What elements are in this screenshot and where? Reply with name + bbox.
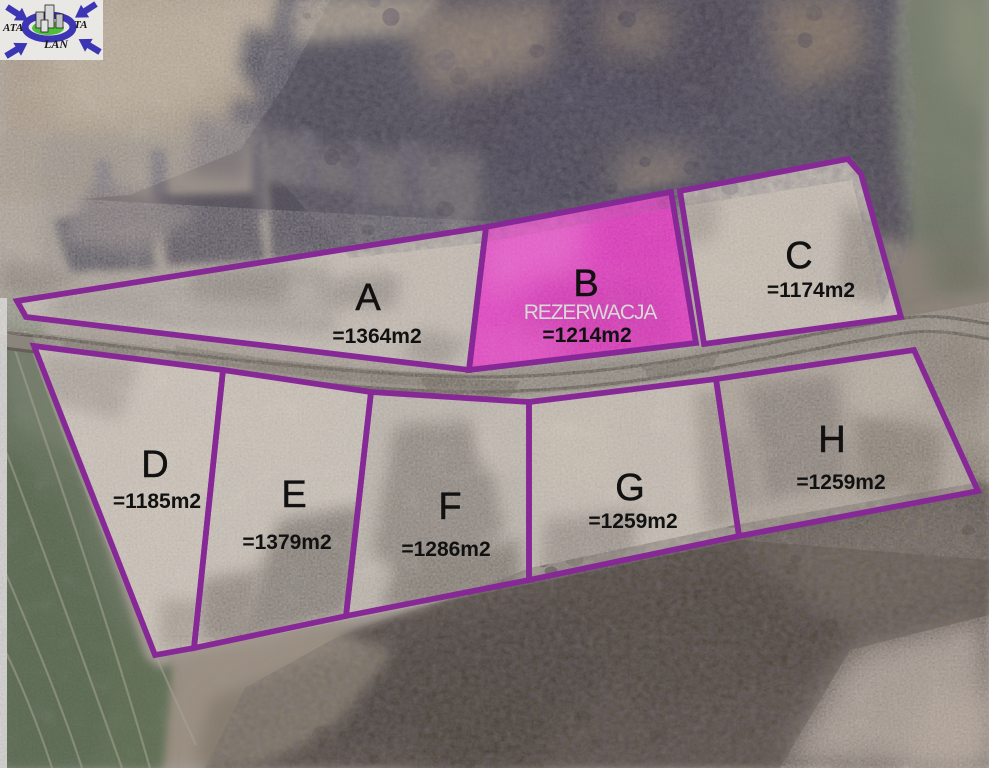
svg-text:REZERWACJA: REZERWACJA <box>524 301 658 324</box>
svg-text:=1259m2: =1259m2 <box>588 510 677 533</box>
svg-text:=1259m2: =1259m2 <box>796 471 885 494</box>
svg-text:C: C <box>785 235 812 277</box>
svg-text:=1185m2: =1185m2 <box>113 490 201 513</box>
svg-text:B: B <box>573 263 598 305</box>
svg-text:LAN: LAN <box>43 37 69 51</box>
svg-text:G: G <box>615 467 645 509</box>
svg-text:=1214m2: =1214m2 <box>542 324 631 347</box>
svg-text:E: E <box>281 474 306 516</box>
svg-text:=1379m2: =1379m2 <box>242 531 331 554</box>
svg-text:H: H <box>818 419 845 461</box>
svg-text:=1364m2: =1364m2 <box>332 325 421 348</box>
svg-text:D: D <box>141 444 168 486</box>
svg-text:=1286m2: =1286m2 <box>401 538 490 561</box>
svg-text:F: F <box>438 486 461 528</box>
svg-text:=1174m2: =1174m2 <box>767 279 855 302</box>
svg-text:A: A <box>355 277 381 319</box>
svg-text:TA: TA <box>74 19 87 31</box>
svg-text:ATA: ATA <box>2 22 23 34</box>
